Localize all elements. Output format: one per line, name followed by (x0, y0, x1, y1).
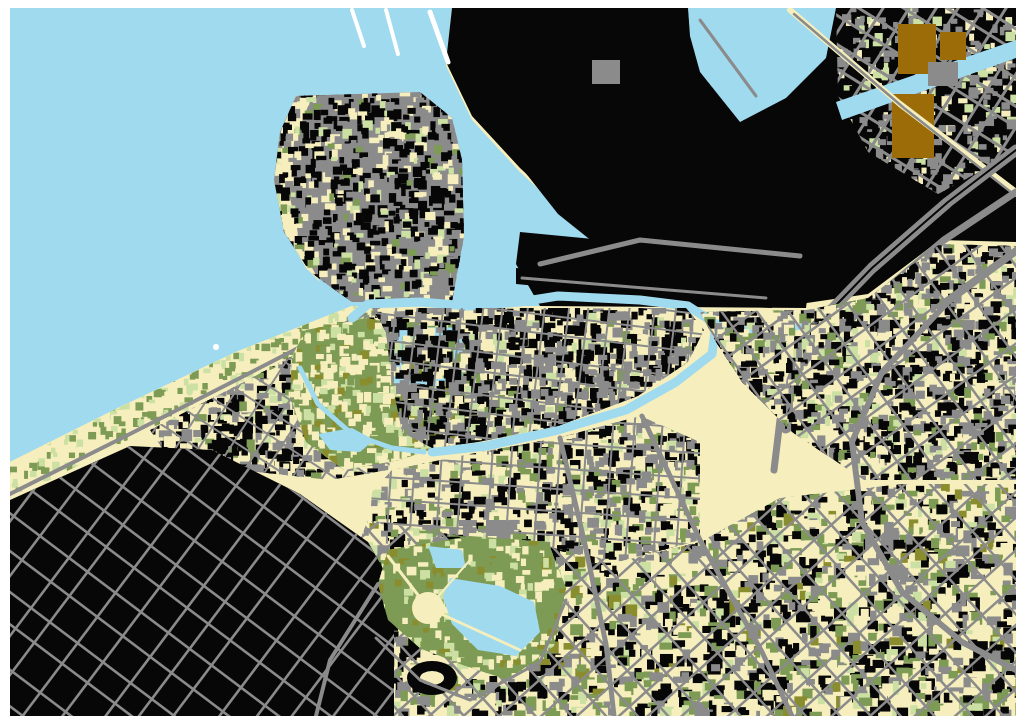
map-screenshot (0, 0, 1024, 724)
land-cover-map-canvas (0, 0, 1024, 724)
